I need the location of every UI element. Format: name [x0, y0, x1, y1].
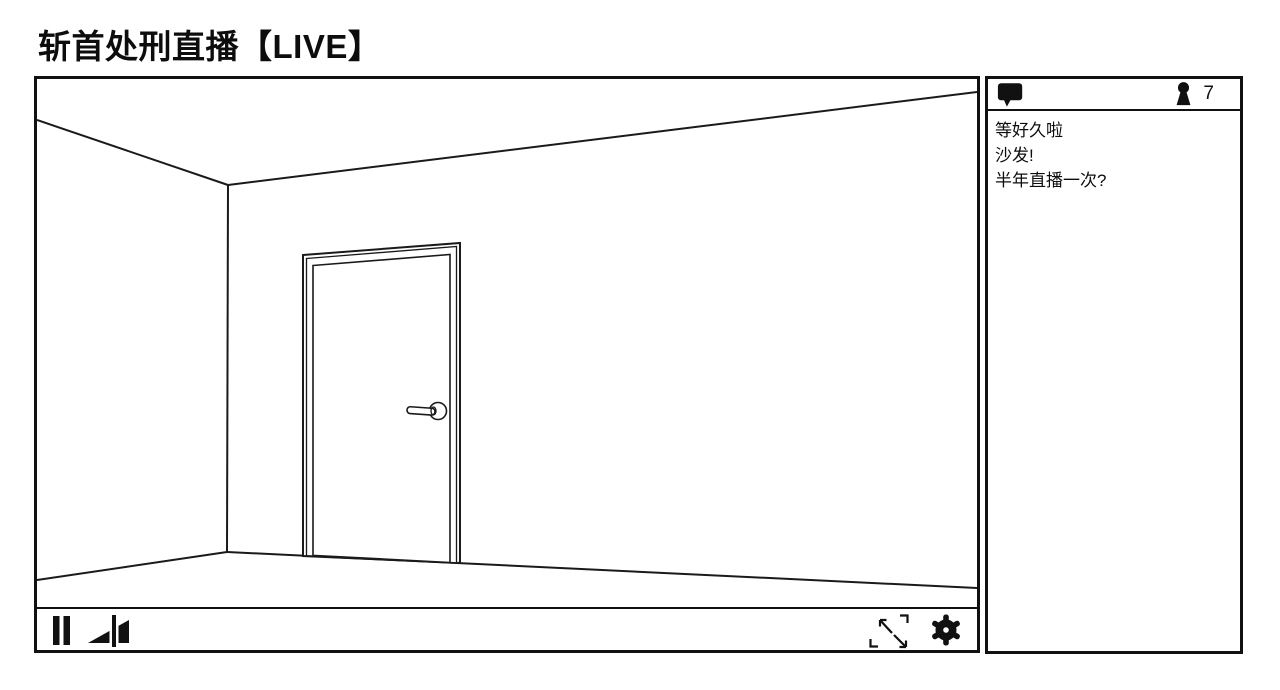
viewer-counter: 7: [1174, 82, 1214, 106]
page-title: 斩首处刑直播【LIVE】: [38, 20, 381, 68]
chat-header: 7: [988, 79, 1240, 111]
wall-corner-edge: [227, 185, 228, 552]
chat-panel: 7 等好久啦 沙发! 半年直播一次?: [985, 76, 1243, 654]
ceiling-edge-left: [37, 120, 228, 185]
viewer-count: 7: [1203, 83, 1214, 105]
video-area[interactable]: [37, 79, 977, 607]
chat-messages: 等好久啦 沙发! 半年直播一次?: [988, 111, 1240, 193]
chat-message: 半年直播一次?: [995, 168, 1232, 193]
speech-bubble-icon: [997, 80, 1024, 108]
room-scene: [37, 79, 977, 607]
floor-edge-left: [37, 552, 227, 580]
person-icon: [1174, 82, 1193, 106]
volume-icon[interactable]: [86, 613, 133, 649]
fullscreen-icon[interactable]: [867, 612, 911, 650]
video-player: [34, 76, 980, 653]
gear-icon[interactable]: [929, 613, 963, 647]
chat-message: 沙发!: [995, 143, 1232, 168]
player-controls: [37, 607, 977, 650]
ceiling-edge-right: [228, 92, 977, 185]
chat-message: 等好久啦: [995, 118, 1232, 143]
page: 斩首处刑直播【LIVE】: [0, 0, 1280, 690]
pause-icon[interactable]: [53, 616, 71, 645]
door: [303, 243, 460, 563]
